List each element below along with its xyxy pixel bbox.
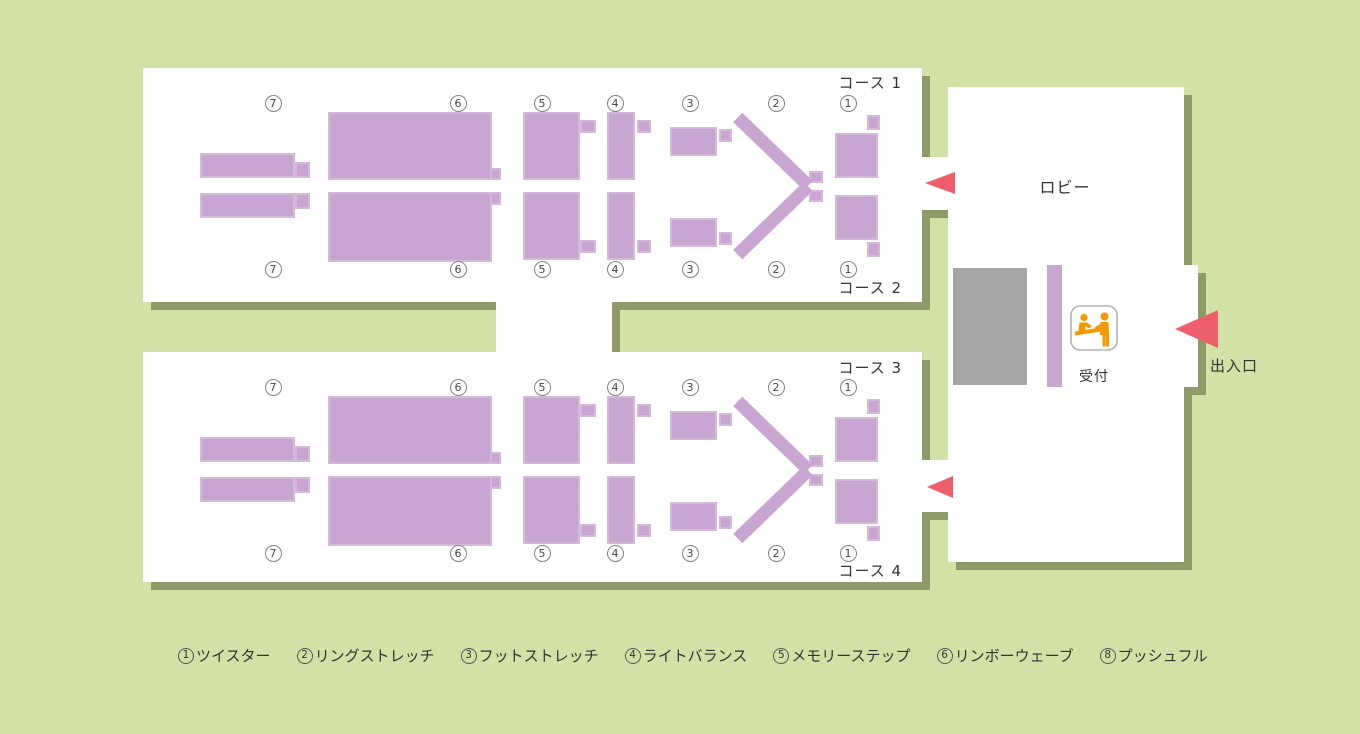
center-corridor — [496, 302, 612, 352]
course-3-label: コース 3 — [790, 357, 902, 378]
legend-number-badge: 1 — [178, 648, 194, 664]
equipment-shape — [200, 193, 295, 218]
equipment-shape — [328, 112, 492, 180]
station-number-badge: 1 — [840, 95, 857, 112]
legend-item: 5メモリーステップ — [773, 645, 910, 666]
legend-number-badge: 8 — [1100, 648, 1116, 664]
legend-number-badge: 5 — [773, 648, 789, 664]
station-number-badge: 2 — [768, 95, 785, 112]
station-number-badge: 1 — [840, 545, 857, 562]
station-number-badge: 6 — [450, 545, 467, 562]
legend-item: 4ライトバランス — [625, 645, 748, 666]
legend-item: 1ツイスター — [178, 645, 271, 666]
equipment-shape — [867, 242, 880, 257]
equipment-shape — [580, 404, 596, 417]
equipment-shape — [490, 476, 501, 489]
equipment-shape — [719, 129, 732, 142]
legend-item: 8プッシュフル — [1100, 645, 1208, 666]
legend-number-badge: 2 — [297, 648, 313, 664]
legend-equipment-name: リンボーウェーブ — [955, 645, 1074, 666]
equipment-shape — [607, 192, 635, 260]
equipment-shape — [719, 413, 732, 426]
equipment-shape — [328, 476, 492, 546]
equipment-shape — [200, 437, 295, 462]
equipment-shape — [328, 192, 492, 262]
equipment-shape — [523, 476, 580, 544]
legend-item: 2リングストレッチ — [297, 645, 435, 666]
station-number-badge: 7 — [265, 261, 282, 278]
equipment-shape — [295, 446, 310, 462]
equipment-shape — [200, 477, 295, 502]
equipment-shape — [867, 526, 880, 541]
course-4-label: コース 4 — [790, 560, 902, 581]
station-number-badge: 2 — [768, 261, 785, 278]
equipment-shape — [607, 112, 635, 180]
equipment-shape — [835, 479, 878, 524]
equipment-shape — [607, 476, 635, 544]
equipment-shape — [490, 168, 501, 180]
station-number-badge: 7 — [265, 545, 282, 562]
equipment-shape — [867, 115, 880, 130]
station-number-badge: 6 — [450, 95, 467, 112]
floor-plan: 7654321765432176543217654321 コース 1 コース 2… — [0, 0, 1360, 734]
equipment-shape — [670, 411, 717, 440]
equipment-shape — [580, 524, 596, 537]
station-number-badge: 1 — [840, 379, 857, 396]
station-number-badge: 5 — [534, 545, 551, 562]
station-number-badge: 5 — [534, 95, 551, 112]
equipment-shape — [670, 127, 717, 156]
equipment-shape — [490, 452, 501, 464]
course-2-label: コース 2 — [790, 277, 902, 298]
equipment-shape — [835, 195, 878, 240]
station-number-badge: 7 — [265, 95, 282, 112]
legend-item: 6リンボーウェーブ — [937, 645, 1074, 666]
legend-equipment-name: フットストレッチ — [479, 645, 599, 666]
legend-number-badge: 6 — [937, 648, 953, 664]
station-number-badge: 2 — [768, 379, 785, 396]
equipment-shape — [523, 192, 580, 260]
legend-number-badge: 4 — [625, 648, 641, 664]
entrance-arrow — [1175, 310, 1218, 348]
equipment-shape — [670, 218, 717, 247]
station-number-badge: 3 — [682, 261, 699, 278]
equipment-shape — [835, 133, 878, 178]
equipment-shape — [719, 516, 732, 529]
equipment-shape — [328, 396, 492, 464]
equipment-shape — [490, 192, 501, 205]
equipment-shape — [637, 120, 651, 133]
legend-equipment-name: プッシュフル — [1118, 645, 1208, 666]
equipment-shape — [295, 193, 310, 209]
equipment-shape — [867, 399, 880, 414]
station-number-badge: 3 — [682, 95, 699, 112]
equipment-legend: 1ツイスター2リングストレッチ3フットストレッチ4ライトバランス5メモリーステッ… — [178, 645, 1208, 666]
station-number-badge: 4 — [607, 379, 624, 396]
station-number-badge: 4 — [607, 261, 624, 278]
flow-arrow-bottom — [927, 476, 953, 498]
station-number-badge: 4 — [607, 95, 624, 112]
flow-arrow-top — [925, 172, 955, 194]
station-number-badge: 7 — [265, 379, 282, 396]
entrance-label: 出入口 — [1210, 355, 1258, 376]
equipment-shape — [580, 120, 596, 133]
station-number-badge: 1 — [840, 261, 857, 278]
station-number-badge: 2 — [768, 545, 785, 562]
equipment-shape — [607, 396, 635, 464]
legend-equipment-name: ツイスター — [196, 645, 271, 666]
station-number-badge: 5 — [534, 379, 551, 396]
reception-label: 受付 — [1062, 366, 1126, 386]
equipment-shape — [637, 240, 651, 253]
legend-number-badge: 3 — [461, 648, 477, 664]
legend-item: 3フットストレッチ — [461, 645, 599, 666]
equipment-shape — [580, 240, 596, 253]
station-number-badge: 4 — [607, 545, 624, 562]
station-number-badge: 3 — [682, 379, 699, 396]
lobby-desk — [953, 268, 1027, 385]
equipment-shape — [670, 502, 717, 531]
equipment-shape — [637, 524, 651, 537]
equipment-shape — [523, 396, 580, 464]
equipment-shape — [719, 232, 732, 245]
reception-icon — [1070, 305, 1118, 351]
lobby-label: ロビー — [1015, 174, 1115, 198]
station-number-badge: 3 — [682, 545, 699, 562]
equipment-shape — [523, 112, 580, 180]
legend-equipment-name: リングストレッチ — [315, 645, 435, 666]
equipment-shape — [295, 477, 310, 493]
station-number-badge: 6 — [450, 261, 467, 278]
legend-equipment-name: ライトバランス — [643, 645, 748, 666]
course-1-label: コース 1 — [790, 72, 902, 93]
reception-counter — [1047, 265, 1062, 387]
equipment-shape — [295, 162, 310, 178]
equipment-shape — [637, 404, 651, 417]
legend-equipment-name: メモリーステップ — [791, 645, 910, 666]
station-number-badge: 6 — [450, 379, 467, 396]
equipment-shape — [200, 153, 295, 178]
equipment-shape — [835, 417, 878, 462]
station-number-badge: 5 — [534, 261, 551, 278]
